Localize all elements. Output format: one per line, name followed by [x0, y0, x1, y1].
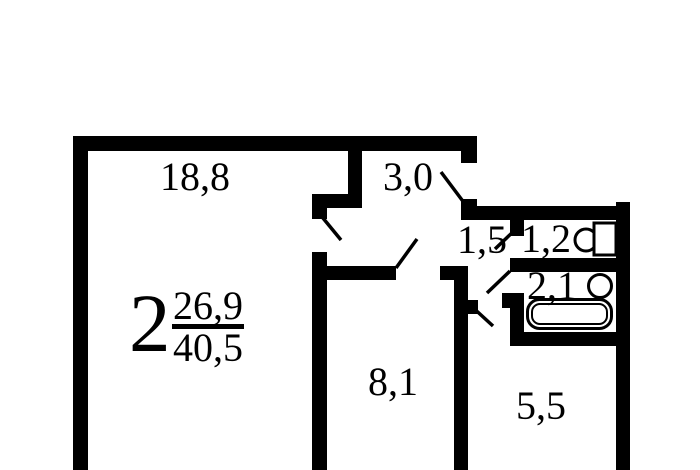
door-swing-kitchen [469, 304, 493, 326]
room-label-corridor: 1,5 [457, 220, 507, 260]
floor-plan: 18,8 3,0 1,5 1,2 2,1 8,1 5,5 2 26,9 40,5 [0, 0, 700, 470]
room-label-second-room: 8,1 [368, 362, 418, 402]
sink-icon [589, 275, 612, 298]
sink-basin [589, 275, 612, 298]
door-swing-hall-corridor [441, 172, 465, 204]
apartment-living-area: 26,9 [172, 288, 244, 329]
plan-graphics [0, 0, 700, 470]
door-swing-second-room [396, 239, 417, 268]
toilet-tank [594, 223, 616, 255]
room-label-bathroom: 2,1 [527, 266, 577, 306]
toilet-icon [575, 223, 616, 255]
room-label-wc: 1,2 [521, 219, 571, 259]
door-swing-bathroom [487, 271, 510, 293]
apartment-areas-fraction: 26,9 40,5 [172, 288, 244, 367]
room-label-living-room: 18,8 [160, 157, 230, 197]
apartment-rooms-count: 2 [129, 282, 171, 365]
apartment-total-area: 40,5 [172, 329, 244, 367]
door-swing-living-room [318, 212, 341, 240]
room-label-kitchen: 5,5 [516, 386, 566, 426]
room-label-hallway: 3,0 [383, 157, 433, 197]
